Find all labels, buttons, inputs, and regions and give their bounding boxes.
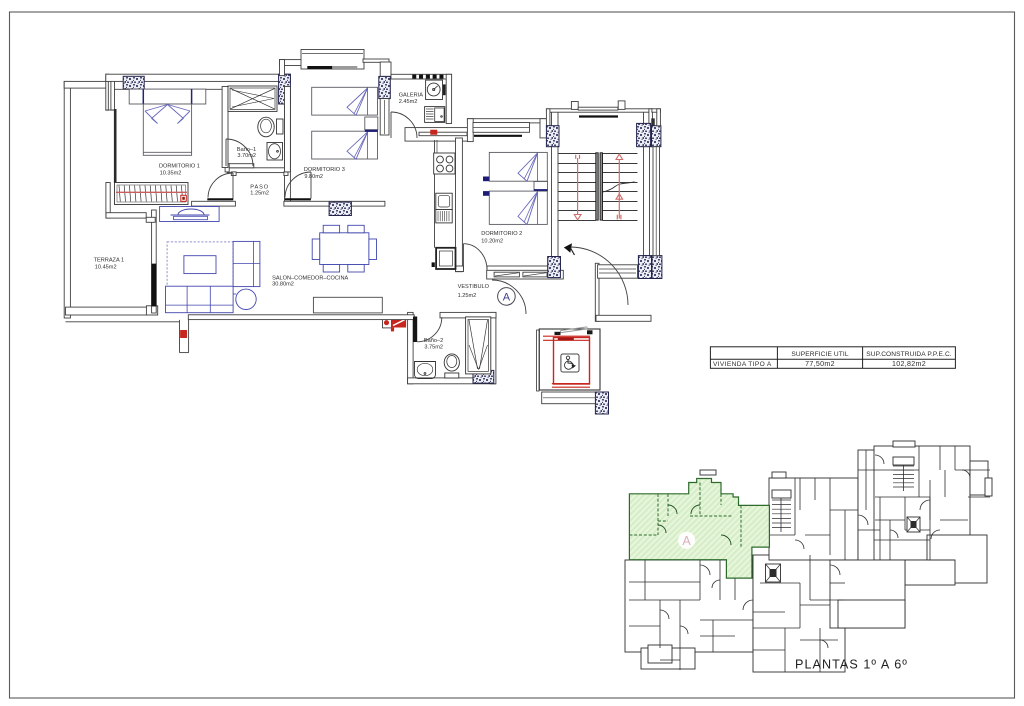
svg-text:SUPERFICIE UTIL: SUPERFICIE UTIL bbox=[791, 351, 848, 358]
svg-text:10.45m2: 10.45m2 bbox=[95, 265, 117, 271]
svg-text:A: A bbox=[682, 534, 691, 548]
svg-text:30.80m2: 30.80m2 bbox=[272, 282, 294, 288]
svg-text:3.75m2: 3.75m2 bbox=[424, 345, 443, 351]
svg-text:1.25m2: 1.25m2 bbox=[250, 190, 269, 196]
svg-text:1.25m2: 1.25m2 bbox=[458, 293, 477, 299]
svg-text:Baño–2: Baño–2 bbox=[424, 338, 443, 344]
svg-text:A: A bbox=[503, 292, 511, 304]
svg-text:TERRAZA 1: TERRAZA 1 bbox=[94, 258, 124, 264]
svg-text:VESTIBULO: VESTIBULO bbox=[458, 284, 490, 290]
svg-text:GALERIA: GALERIA bbox=[399, 92, 424, 98]
svg-text:DORMITORIO 3: DORMITORIO 3 bbox=[304, 167, 345, 173]
svg-text:DORMITORIO 2: DORMITORIO 2 bbox=[481, 231, 522, 237]
svg-text:VIVIENDA TIPO A: VIVIENDA TIPO A bbox=[713, 361, 772, 368]
svg-text:2.45m2: 2.45m2 bbox=[399, 99, 418, 105]
svg-text:9.80m2: 9.80m2 bbox=[304, 174, 323, 180]
svg-text:SUP.CONSTRUIDA P.P.E.C.: SUP.CONSTRUIDA P.P.E.C. bbox=[866, 351, 952, 358]
svg-text:10.35m2: 10.35m2 bbox=[160, 170, 182, 176]
svg-text:DORMITORIO 1: DORMITORIO 1 bbox=[159, 164, 200, 170]
svg-text:102,82m2: 102,82m2 bbox=[892, 360, 926, 368]
svg-text:3.70m2: 3.70m2 bbox=[237, 153, 256, 159]
svg-text:10.20m2: 10.20m2 bbox=[481, 239, 503, 245]
svg-text:77,50m2: 77,50m2 bbox=[805, 360, 835, 368]
svg-text:PLANTAS 1º A 6º: PLANTAS 1º A 6º bbox=[795, 658, 908, 672]
